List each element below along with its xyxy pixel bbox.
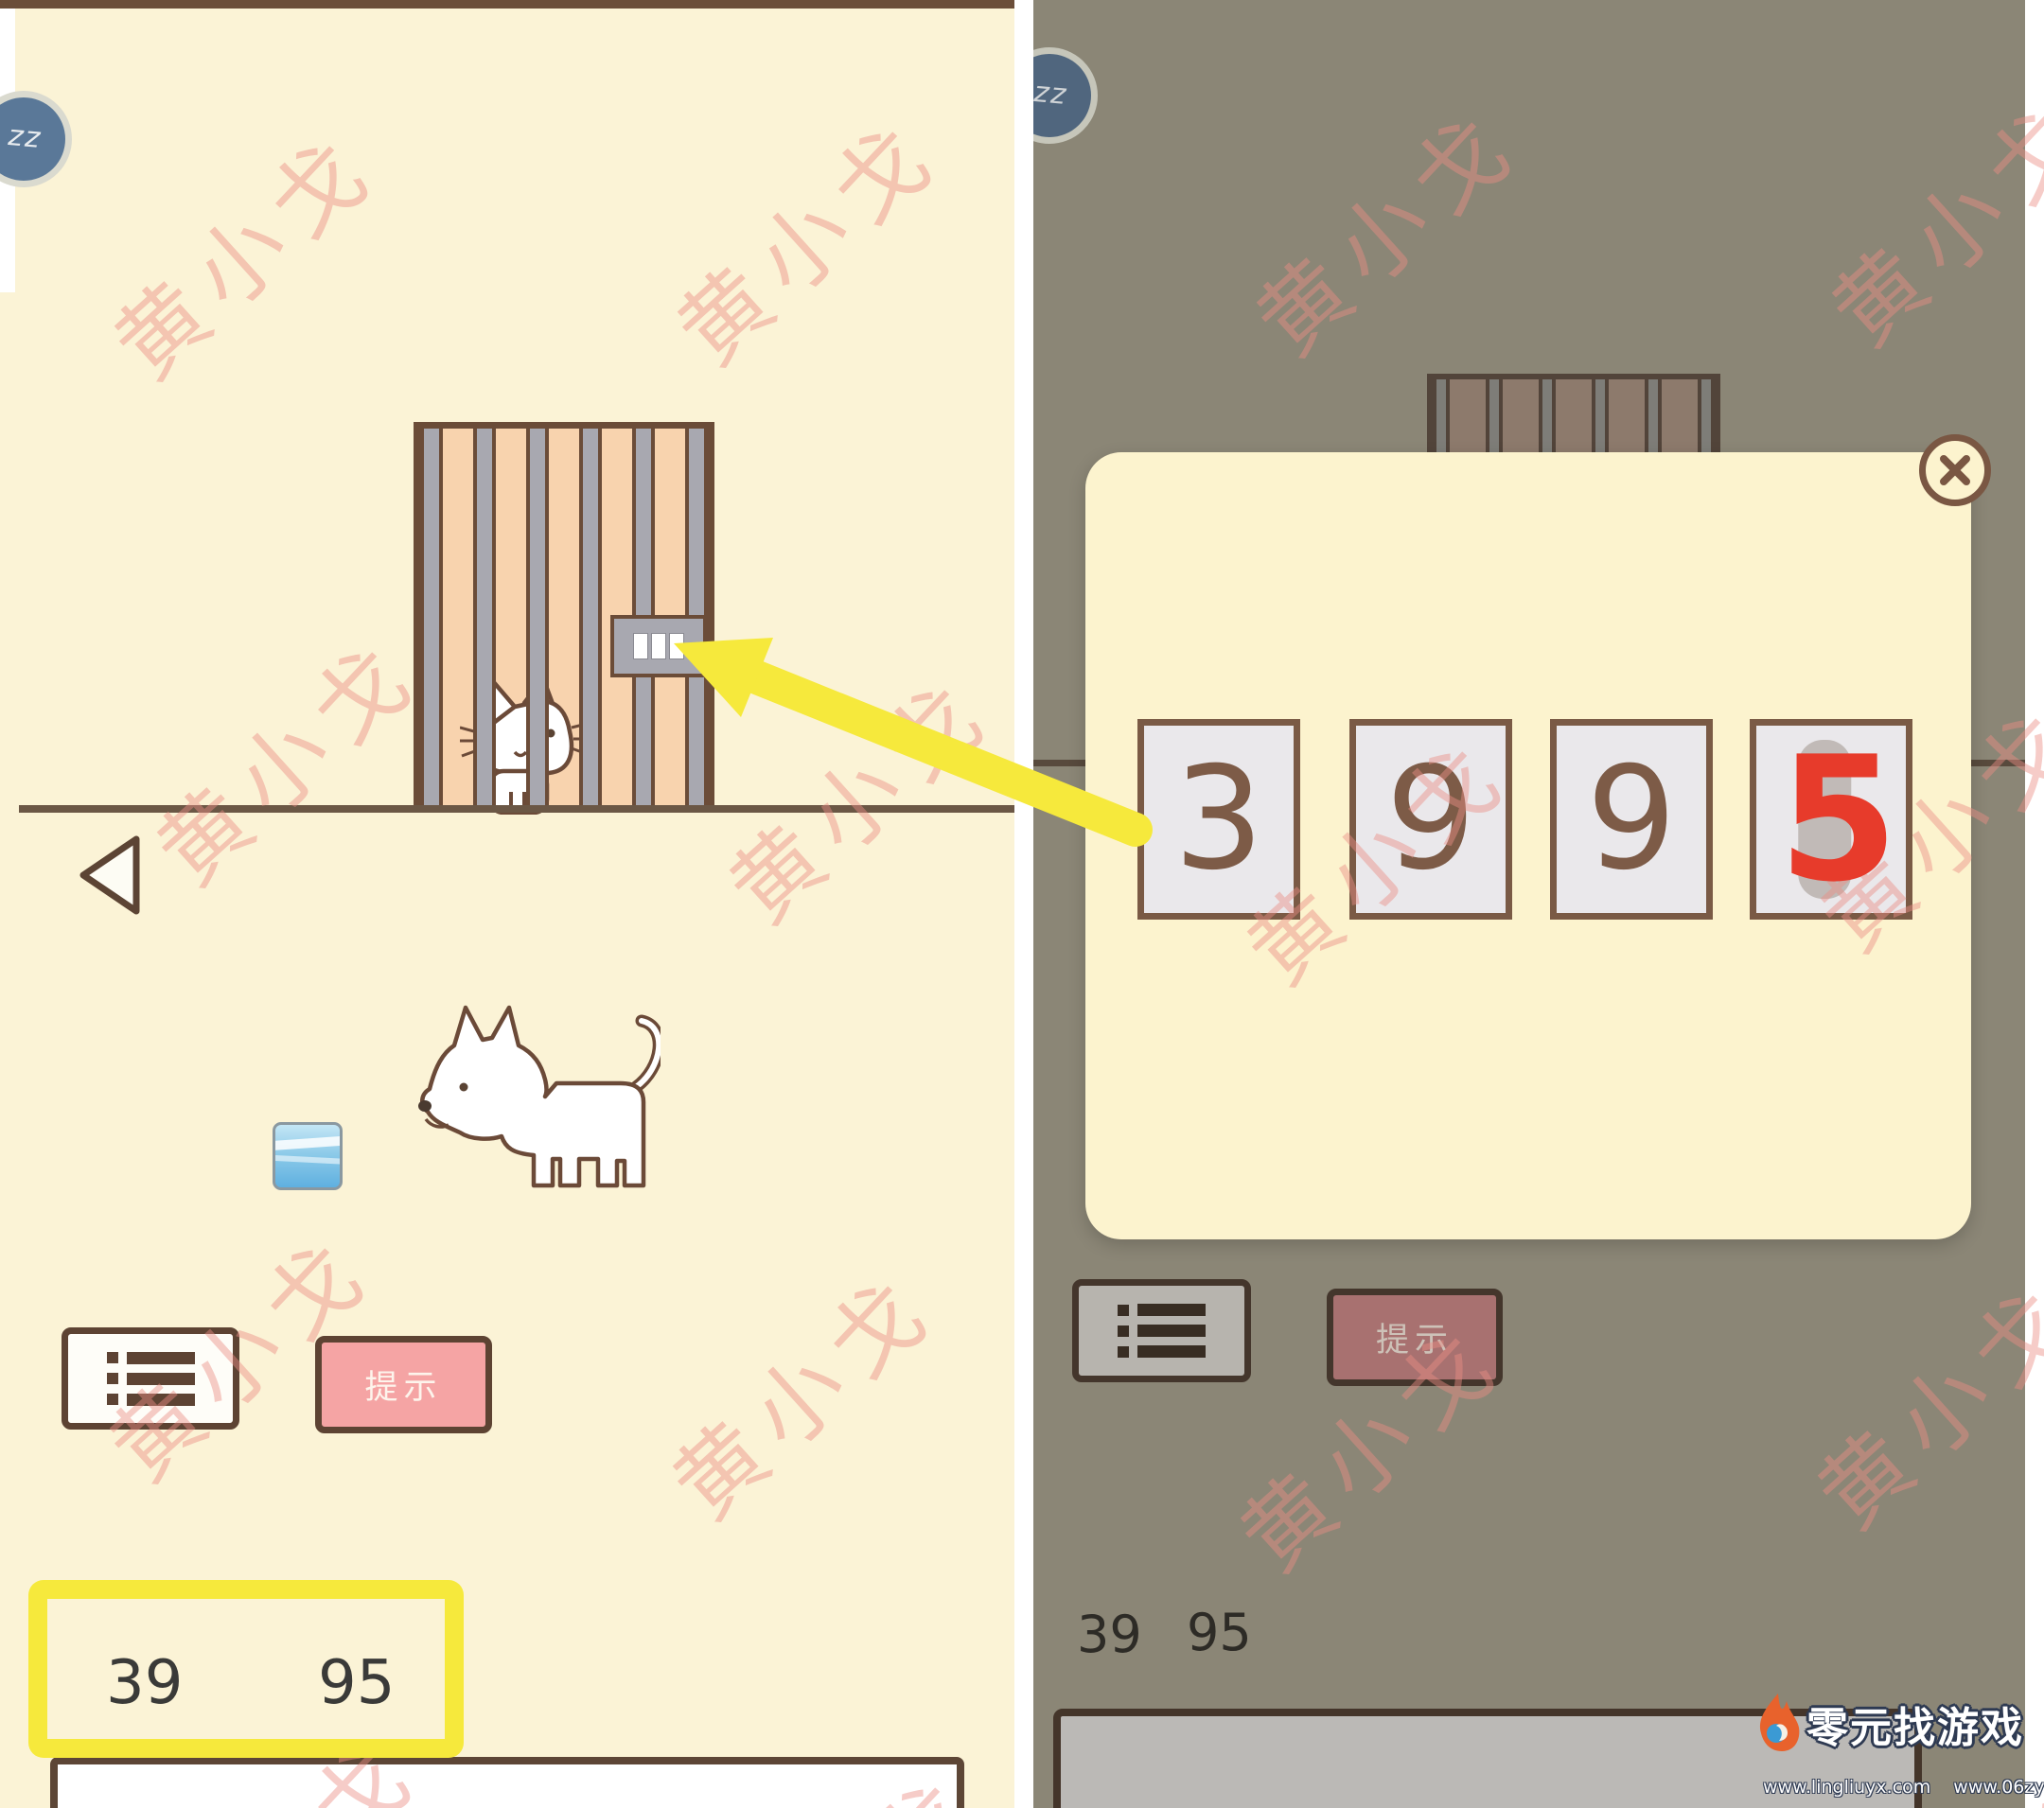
lock-digit-value: 3 <box>1173 748 1263 890</box>
hint-button[interactable]: 提示 <box>315 1336 492 1433</box>
dog[interactable] <box>414 996 661 1190</box>
cage-bar <box>1698 379 1715 461</box>
inventory-bar[interactable] <box>50 1757 964 1808</box>
site-logo-text: 零元找游戏 <box>1806 1694 2024 1754</box>
cage-bar <box>526 429 549 805</box>
sleep-button-label: zz <box>6 121 42 157</box>
cage-bar <box>1433 379 1450 461</box>
cage-bar <box>1592 379 1609 461</box>
menu-button[interactable] <box>1072 1279 1251 1382</box>
cage-bar <box>579 429 602 805</box>
walkthrough-image: zz <box>0 0 2044 1808</box>
close-button[interactable] <box>1919 434 1991 506</box>
lock-digit-window <box>633 633 648 659</box>
lock-digit-box[interactable]: 5 <box>1750 719 1912 920</box>
list-icon <box>107 1352 195 1406</box>
answer-digit-annotation: 5 <box>1778 733 1898 905</box>
site-urls: www.lingliuyx.com www.06zyx.com <box>1763 1777 2044 1798</box>
site-logo: 零元找游戏 www.lingliuyx.com www.06zyx.com <box>1753 1686 2044 1808</box>
cage-bar <box>1539 379 1556 461</box>
lock-digit-box[interactable]: 9 <box>1550 719 1713 920</box>
top-bar <box>0 0 1014 9</box>
sleep-button[interactable]: zz <box>0 91 72 187</box>
cage-bar <box>473 429 496 805</box>
sleep-button-label: zz <box>1033 78 1067 114</box>
cage-bar <box>420 429 443 805</box>
lock-digit-box[interactable]: 9 <box>1349 719 1512 920</box>
note-number-95: 95 <box>1187 1603 1252 1662</box>
close-icon <box>1939 454 1971 486</box>
site-url: www.lingliuyx.com <box>1763 1777 1930 1798</box>
lock-digit-window <box>651 633 666 659</box>
right-edge-strip <box>2025 0 2044 1808</box>
game-screen-right: zz 3995 提示 39 95 <box>1033 0 2025 1808</box>
lock-digit-box[interactable]: 3 <box>1137 719 1300 920</box>
combination-lock[interactable] <box>610 615 707 677</box>
lock-digit-value: 9 <box>1586 748 1676 890</box>
sleep-button[interactable]: zz <box>1033 47 1098 144</box>
back-arrow-button[interactable] <box>76 834 144 916</box>
hint-button-label: 提示 <box>364 1360 442 1409</box>
panel-divider <box>1014 0 1033 1808</box>
hint-button-label: 提示 <box>1376 1313 1454 1361</box>
note-number-39: 39 <box>1077 1605 1142 1664</box>
floor-line <box>1033 760 1087 766</box>
hint-button[interactable]: 提示 <box>1327 1289 1503 1386</box>
floor-line <box>19 805 1014 813</box>
floor-line <box>1969 760 2025 766</box>
list-icon <box>1118 1304 1206 1358</box>
site-url: www.06zyx.com <box>1953 1777 2044 1798</box>
highlight-rectangle-annotation <box>28 1580 464 1758</box>
ice-cube-item[interactable] <box>273 1122 343 1190</box>
lock-digit-value: 9 <box>1385 748 1475 890</box>
cage-bar <box>1645 379 1662 461</box>
dog-nose <box>418 1100 432 1112</box>
menu-button[interactable] <box>62 1327 239 1430</box>
flame-icon <box>1753 1692 1803 1754</box>
cat-cage <box>414 422 714 812</box>
dog-eye <box>460 1083 468 1092</box>
game-screen-left: zz <box>0 0 1014 1808</box>
cage-bar <box>1486 379 1503 461</box>
lock-digit-window <box>669 633 684 659</box>
